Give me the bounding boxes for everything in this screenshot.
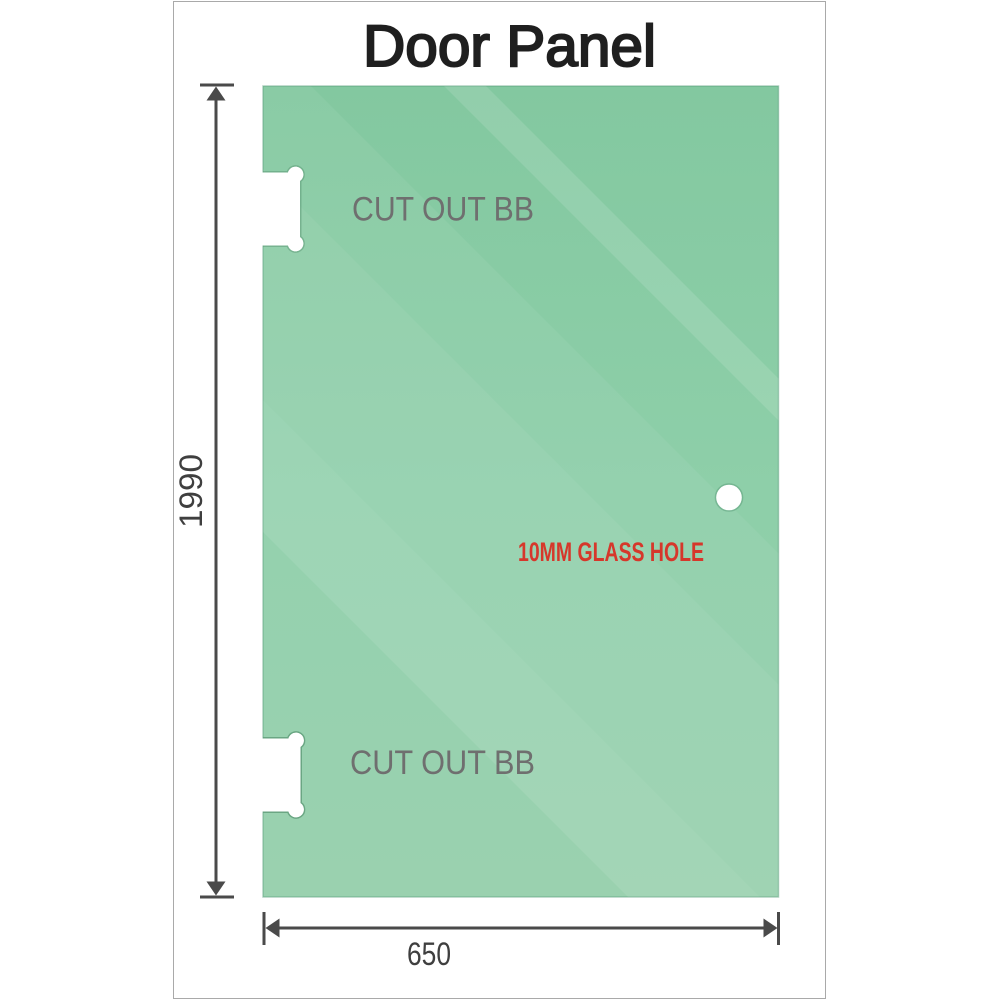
svg-text:1990: 1990 (173, 454, 209, 528)
svg-text:Door Panel: Door Panel (363, 14, 656, 79)
svg-text:650: 650 (407, 936, 451, 972)
svg-text:CUT OUT BB: CUT OUT BB (352, 191, 534, 229)
svg-text:10MM GLASS HOLE: 10MM GLASS HOLE (518, 537, 704, 567)
svg-text:CUT OUT BB: CUT OUT BB (350, 744, 535, 782)
